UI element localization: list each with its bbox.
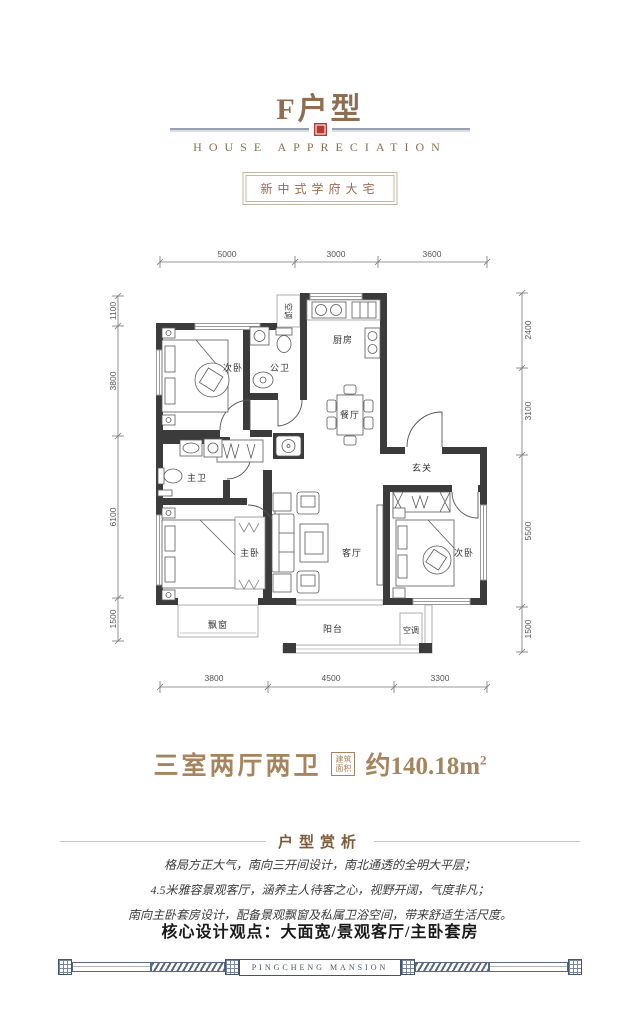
analysis-title: 户型赏析 [278, 831, 362, 852]
footer-ornament: PINGCHENG MANSION [58, 957, 582, 977]
dimension-left [112, 293, 124, 644]
dim-label: 1500 [523, 619, 533, 638]
room-label-foyer: 玄关 [412, 462, 432, 473]
wardrobe-icon [217, 440, 263, 462]
area-exponent: 2 [480, 753, 487, 768]
summary-row: 三室两厅两卫 建筑 面积 约140.18m2 [0, 746, 640, 782]
dim-label: 2400 [523, 320, 533, 339]
divider-line-left [170, 128, 309, 132]
sofa-icon [272, 492, 383, 593]
red-seal-icon [314, 123, 327, 136]
room-label-bedroom-top: 次卧 [223, 362, 243, 373]
dim-label: 3300 [431, 673, 450, 683]
dim-label: 1100 [108, 302, 118, 321]
kitchen-counter-icon [307, 300, 380, 358]
area-value: 约140.18m2 [365, 746, 486, 782]
room-label-master-bedroom: 主卧 [240, 547, 260, 558]
room-label-ac-bottom: 空调 [403, 625, 419, 635]
footer-knot-icon [401, 959, 415, 975]
room-label-bedroom-right: 次卧 [454, 547, 474, 558]
footer-brand: PINGCHENG MANSION [239, 959, 402, 976]
dim-label: 3600 [423, 249, 442, 259]
footer-knot-icon [568, 959, 582, 975]
analysis-line-left [60, 841, 266, 842]
dim-label: 4500 [322, 673, 341, 683]
dimension-right [516, 290, 528, 655]
floor-plan: 5000 3000 3600 3800 4500 3300 1100 3800 … [100, 240, 540, 700]
footer-bar [72, 962, 151, 972]
toilet-icon [250, 327, 292, 388]
footer-knot-icon [225, 959, 239, 975]
slogan-badge-text: 新中式学府大宅 [245, 175, 394, 202]
bed-right-icon [393, 492, 454, 598]
footer-knot-icon [58, 959, 72, 975]
dim-label: 3800 [108, 371, 118, 390]
analysis-line-1: 格局方正大气，南向三开间设计，南北通透的全明大平层； [40, 853, 600, 878]
area-tag-line1: 建筑 [335, 755, 351, 764]
room-label-public-bath: 公卫 [270, 363, 290, 373]
dim-label: 5000 [218, 249, 237, 259]
room-label-ac-top: 空调 [284, 303, 294, 319]
footer-bar [489, 962, 568, 972]
dim-label: 3000 [327, 249, 346, 259]
analysis-header: 户型赏析 [60, 831, 580, 852]
area-tag-line2: 面积 [335, 764, 351, 773]
room-label-kitchen: 厨房 [333, 334, 353, 345]
analysis-line-right [374, 841, 580, 842]
room-label-master-bath: 主卫 [187, 472, 207, 483]
room-label-balcony: 阳台 [323, 623, 343, 634]
analysis-line-2: 4.5米雅容景观客厅，涵养主人待客之心，视野开阔，气度非凡； [40, 878, 600, 903]
room-label-bay-window: 飘窗 [208, 619, 228, 630]
layout-text: 三室两厅两卫 [153, 746, 321, 782]
dim-label: 6100 [108, 507, 118, 526]
page-title: F户型 [0, 84, 640, 128]
dim-label: 3800 [205, 673, 224, 683]
area-number: 约140.18m [365, 753, 480, 780]
footer-braid [415, 962, 489, 972]
dim-label: 1500 [108, 609, 118, 628]
slogan-badge: 新中式学府大宅 [242, 172, 397, 205]
footer-braid [151, 962, 225, 972]
page: F户型 HOUSE APPRECIATION 新中式学府大宅 5000 3000… [0, 0, 640, 1013]
master-bath-fixtures-icon [158, 439, 222, 496]
room-label-dining: 餐厅 [340, 409, 360, 420]
room-label-living: 客厅 [342, 547, 362, 558]
analysis-body: 格局方正大气，南向三开间设计，南北通透的全明大平层； 4.5米雅容景观客厅，涵养… [40, 853, 600, 928]
dim-label: 3100 [523, 401, 533, 420]
design-keypoint: 核心设计观点：大面宽/景观客厅/主卧套房 [0, 918, 640, 942]
area-tag: 建筑 面积 [331, 752, 355, 776]
bed-icon [162, 328, 229, 425]
page-subtitle: HOUSE APPRECIATION [0, 140, 640, 155]
dim-label: 5500 [523, 521, 533, 540]
divider-line-right [332, 128, 471, 132]
vanity-icon [273, 433, 304, 459]
title-divider [170, 123, 470, 136]
